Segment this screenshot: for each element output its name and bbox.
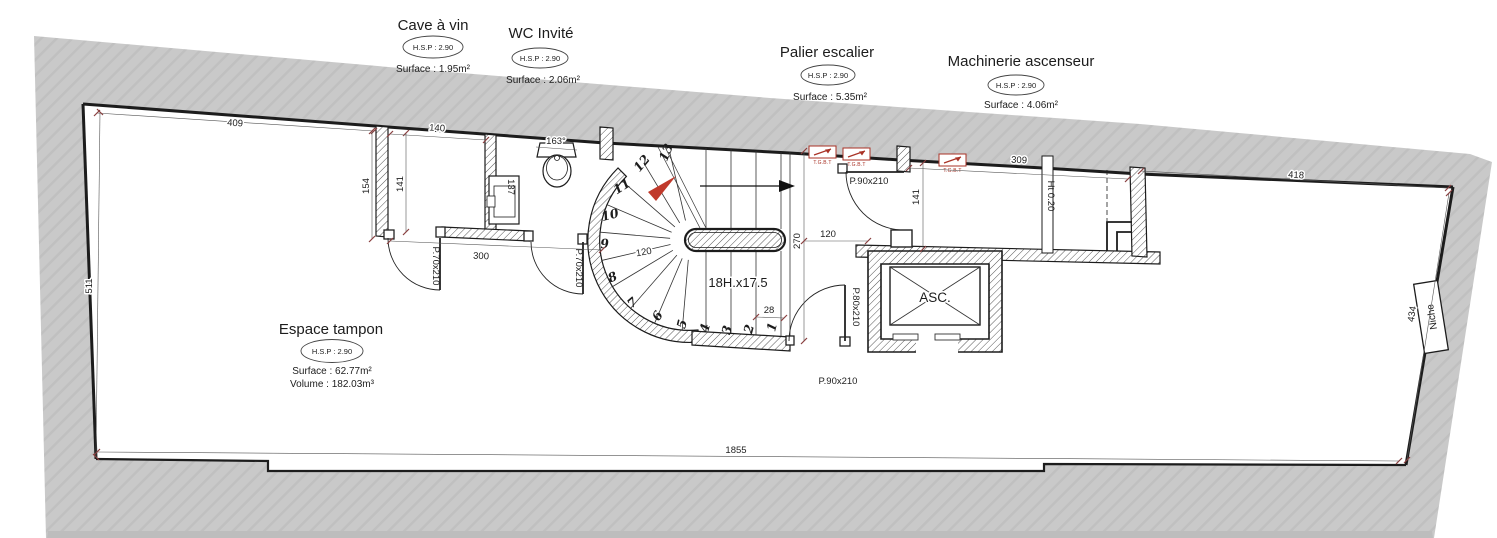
svg-text:154: 154: [361, 178, 372, 194]
door-palier-bottom: P.80x210: [786, 285, 861, 346]
step-6: 6: [649, 308, 666, 324]
hsp-value: H.S.P : 2.90: [312, 347, 352, 356]
svg-text:409: 409: [227, 118, 244, 130]
dim-300: 300: [387, 238, 605, 262]
step-12: 12: [630, 151, 653, 174]
room-surface: Surface : 2.06m²: [506, 75, 581, 86]
step-9: 9: [600, 236, 610, 252]
low-wall-label: Ht 0.20: [1045, 181, 1056, 212]
step-outer: [1107, 222, 1132, 251]
room-label-cave: Cave à vin H.S.P : 2.90 Surface : 1.95m²: [396, 17, 471, 75]
room-title: Palier escalier: [780, 44, 874, 61]
room-title: WC Invité: [508, 25, 573, 42]
doors: P.70x210 P.70x210 P.90x210 P.80x210 P.90…: [384, 164, 912, 387]
elevator-sill-right: [935, 334, 960, 340]
svg-text:309: 309: [1011, 155, 1027, 167]
door-wc: P.70x210: [524, 231, 587, 294]
door-cave-label: P.70x210: [430, 247, 441, 286]
svg-text:120: 120: [820, 229, 836, 240]
room-surface: Surface : 1.95m²: [396, 64, 471, 75]
step-10: 10: [600, 205, 621, 224]
low-wall: Ht 0.20: [1042, 156, 1056, 253]
svg-text:300: 300: [473, 251, 489, 263]
stair-direction-arrow-icon: [779, 180, 795, 192]
tgbt-panel-3: T.G.B.T: [939, 154, 966, 174]
room-surface: Surface : 62.77m²: [292, 366, 372, 377]
hsp-value: H.S.P : 2.90: [413, 43, 453, 52]
dim-141-cave: 141: [395, 130, 409, 235]
svg-text:141: 141: [395, 176, 406, 192]
svg-text:163°: 163°: [546, 136, 566, 147]
tgbt-panel-2: T.G.B.T: [843, 148, 870, 168]
dim-270: 270: [792, 148, 807, 344]
elevator: ASC.: [868, 251, 1002, 353]
wc-fixtures: 137: [487, 143, 576, 224]
door-palier-top-label: P.90x210: [850, 176, 889, 187]
room-label-tampon: Espace tampon H.S.P : 2.90 Surface : 62.…: [279, 321, 383, 390]
room-title: Cave à vin: [398, 17, 469, 34]
stair-spec-label: 18H.x17.5: [708, 275, 767, 290]
svg-text:120: 120: [635, 246, 653, 260]
svg-text:140: 140: [429, 123, 446, 135]
elevator-sill-left: [893, 334, 918, 340]
svg-text:511: 511: [84, 278, 95, 293]
dim-154: 154: [361, 128, 375, 242]
exterior-band-bottom-shade: [47, 531, 1433, 538]
wall-palier-door-stub: [897, 146, 910, 172]
tgbt-label-2: T.G.B.T: [847, 162, 865, 168]
door-espace-label: P.90x210: [819, 376, 858, 387]
wall-cave-left: [376, 126, 388, 237]
dim-120-palier: 120: [801, 229, 871, 244]
room-label-palier: Palier escalier H.S.P : 2.90 Surface : 5…: [780, 44, 874, 103]
door-landing-block: [891, 230, 912, 247]
step-inner: [1117, 232, 1132, 251]
toilet-flush-icon: [555, 156, 560, 161]
svg-text:141: 141: [911, 189, 922, 205]
step-5: 5: [673, 318, 690, 330]
elevator-label: ASC.: [919, 290, 951, 305]
tgbt-label-1: T.G.B.T: [813, 160, 831, 166]
svg-text:270: 270: [792, 233, 803, 249]
svg-text:1855: 1855: [725, 445, 746, 456]
room-title: Machinerie ascenseur: [948, 53, 1095, 70]
floor-plan-canvas: Ht 0.20: [0, 0, 1497, 538]
room-surface: Surface : 4.06m²: [984, 100, 1059, 111]
step-1: 1: [763, 321, 780, 333]
door-palier-bottom-label: P.80x210: [850, 288, 861, 327]
tgbt-label-3: T.G.B.T: [943, 168, 961, 174]
wall-wc-bottom: [442, 227, 530, 241]
stair-up-red-arrow-icon: [648, 176, 676, 201]
machinery-step-detail: [1107, 170, 1132, 251]
dim-1855: 1855: [94, 445, 1402, 464]
hsp-value: H.S.P : 2.90: [520, 54, 560, 63]
dim-28: 28: [753, 305, 787, 321]
hsp-value: H.S.P : 2.90: [808, 71, 848, 80]
stair-bottom-wall: [692, 331, 790, 351]
hsp-value: H.S.P : 2.90: [996, 81, 1036, 90]
wall-machinery-right: [1130, 167, 1147, 257]
spiral-staircase: 1 2 3 4 5 6 7 8 9 10 11 12 13 18H.x17.5: [588, 141, 795, 351]
door-palier-top: P.90x210: [838, 164, 912, 247]
room-surface: Surface : 5.35m²: [793, 92, 868, 103]
svg-text:418: 418: [1288, 170, 1304, 182]
dim-141-palier: 141: [911, 160, 926, 252]
washbasin-dim: 137: [505, 179, 516, 195]
door-cave: P.70x210: [384, 227, 445, 290]
room-volume: Volume : 182.03m³: [290, 379, 375, 390]
svg-text:434: 434: [1406, 305, 1419, 322]
dim-120-stair: 120: [635, 246, 653, 260]
room-label-machinerie: Machinerie ascenseur H.S.P : 2.90 Surfac…: [948, 53, 1095, 111]
tgbt-panel-1: T.G.B.T: [809, 146, 836, 166]
room-title: Espace tampon: [279, 321, 383, 338]
svg-text:28: 28: [764, 305, 775, 316]
washbasin-tap-icon: [487, 196, 495, 207]
wall-stair-top-stub: [600, 127, 613, 160]
room-label-wc: WC Invité H.S.P : 2.90 Surface : 2.06m²: [506, 25, 581, 86]
door-wc-label: P.70x210: [573, 249, 584, 288]
